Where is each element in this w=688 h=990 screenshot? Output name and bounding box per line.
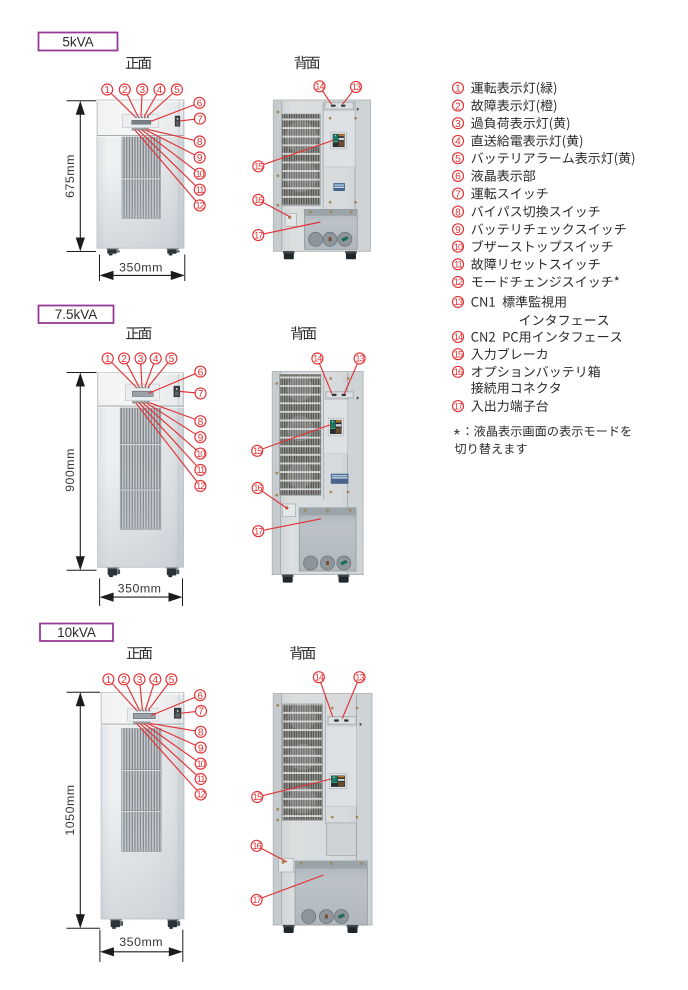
svg-text:7.5kVA: 7.5kVA (55, 307, 98, 322)
svg-text:2: 2 (455, 101, 461, 112)
svg-text:4: 4 (157, 85, 163, 96)
svg-text:1050mm: 1050mm (63, 784, 77, 835)
svg-text:14: 14 (315, 672, 324, 682)
svg-text:10: 10 (196, 169, 205, 179)
svg-text:6: 6 (455, 172, 461, 183)
svg-text:3: 3 (139, 85, 145, 96)
svg-text:350mm: 350mm (119, 935, 163, 949)
svg-text:14: 14 (313, 354, 322, 364)
svg-text:1: 1 (105, 354, 111, 365)
svg-text:13: 13 (352, 82, 361, 92)
svg-text:8: 8 (198, 727, 204, 738)
svg-text:16: 16 (254, 483, 263, 493)
svg-text:12: 12 (196, 481, 205, 491)
svg-text:5kVA: 5kVA (62, 34, 93, 49)
svg-text:13: 13 (355, 672, 364, 682)
svg-text:15: 15 (253, 792, 262, 802)
svg-text:7: 7 (198, 707, 204, 718)
svg-text:10: 10 (197, 759, 206, 769)
svg-text:14: 14 (315, 81, 324, 91)
svg-text:350mm: 350mm (118, 581, 162, 595)
svg-text:4: 4 (153, 354, 159, 365)
svg-text:*: * (454, 427, 460, 444)
svg-text:11: 11 (197, 774, 205, 784)
svg-text:15: 15 (254, 161, 263, 171)
svg-text:11: 11 (454, 259, 462, 269)
svg-text:10: 10 (454, 242, 463, 252)
svg-text:3: 3 (137, 675, 143, 686)
svg-text:10: 10 (196, 449, 205, 459)
svg-text:5: 5 (169, 675, 175, 686)
svg-text:16: 16 (253, 841, 262, 851)
svg-text:14: 14 (454, 332, 463, 342)
svg-text:2: 2 (122, 85, 128, 96)
svg-text:5: 5 (174, 85, 180, 96)
svg-text:13: 13 (356, 354, 365, 364)
svg-text:16: 16 (454, 367, 463, 377)
svg-text:12: 12 (196, 201, 205, 211)
svg-text:6: 6 (197, 691, 203, 702)
svg-text:3: 3 (455, 119, 461, 130)
svg-text:15: 15 (454, 349, 463, 359)
svg-text:17: 17 (253, 895, 262, 905)
svg-text:9: 9 (455, 225, 461, 236)
svg-text:4: 4 (152, 675, 158, 686)
svg-text:13: 13 (454, 297, 463, 307)
svg-text:11: 11 (197, 465, 205, 475)
svg-text:350mm: 350mm (119, 261, 163, 275)
svg-text:17: 17 (254, 230, 263, 240)
svg-text:12: 12 (197, 790, 206, 800)
svg-text:11: 11 (196, 185, 204, 195)
svg-text:17: 17 (254, 526, 263, 536)
svg-text:7: 7 (197, 114, 203, 125)
svg-text:2: 2 (121, 354, 127, 365)
svg-text:7: 7 (198, 389, 204, 400)
svg-text:7: 7 (455, 189, 461, 200)
svg-text:675mm: 675mm (63, 154, 77, 198)
svg-text:8: 8 (198, 417, 204, 428)
svg-text:8: 8 (197, 137, 203, 148)
svg-text:6: 6 (198, 367, 204, 378)
svg-text:15: 15 (253, 446, 262, 456)
svg-text:3: 3 (138, 354, 144, 365)
svg-text:2: 2 (121, 675, 127, 686)
svg-text:1: 1 (106, 675, 112, 686)
svg-text:12: 12 (454, 277, 463, 287)
svg-text:17: 17 (454, 401, 463, 411)
svg-text:10kVA: 10kVA (57, 625, 96, 640)
svg-text:5: 5 (455, 154, 461, 165)
svg-text:9: 9 (198, 433, 204, 444)
svg-text:8: 8 (455, 207, 461, 218)
svg-text:9: 9 (197, 153, 203, 164)
svg-text:6: 6 (197, 98, 203, 109)
svg-text:900mm: 900mm (63, 448, 77, 492)
svg-text:1: 1 (104, 85, 110, 96)
svg-text:9: 9 (198, 743, 204, 754)
svg-text:5: 5 (169, 354, 175, 365)
svg-text:1: 1 (455, 84, 461, 95)
svg-text:4: 4 (455, 137, 461, 148)
svg-text:16: 16 (254, 195, 263, 205)
